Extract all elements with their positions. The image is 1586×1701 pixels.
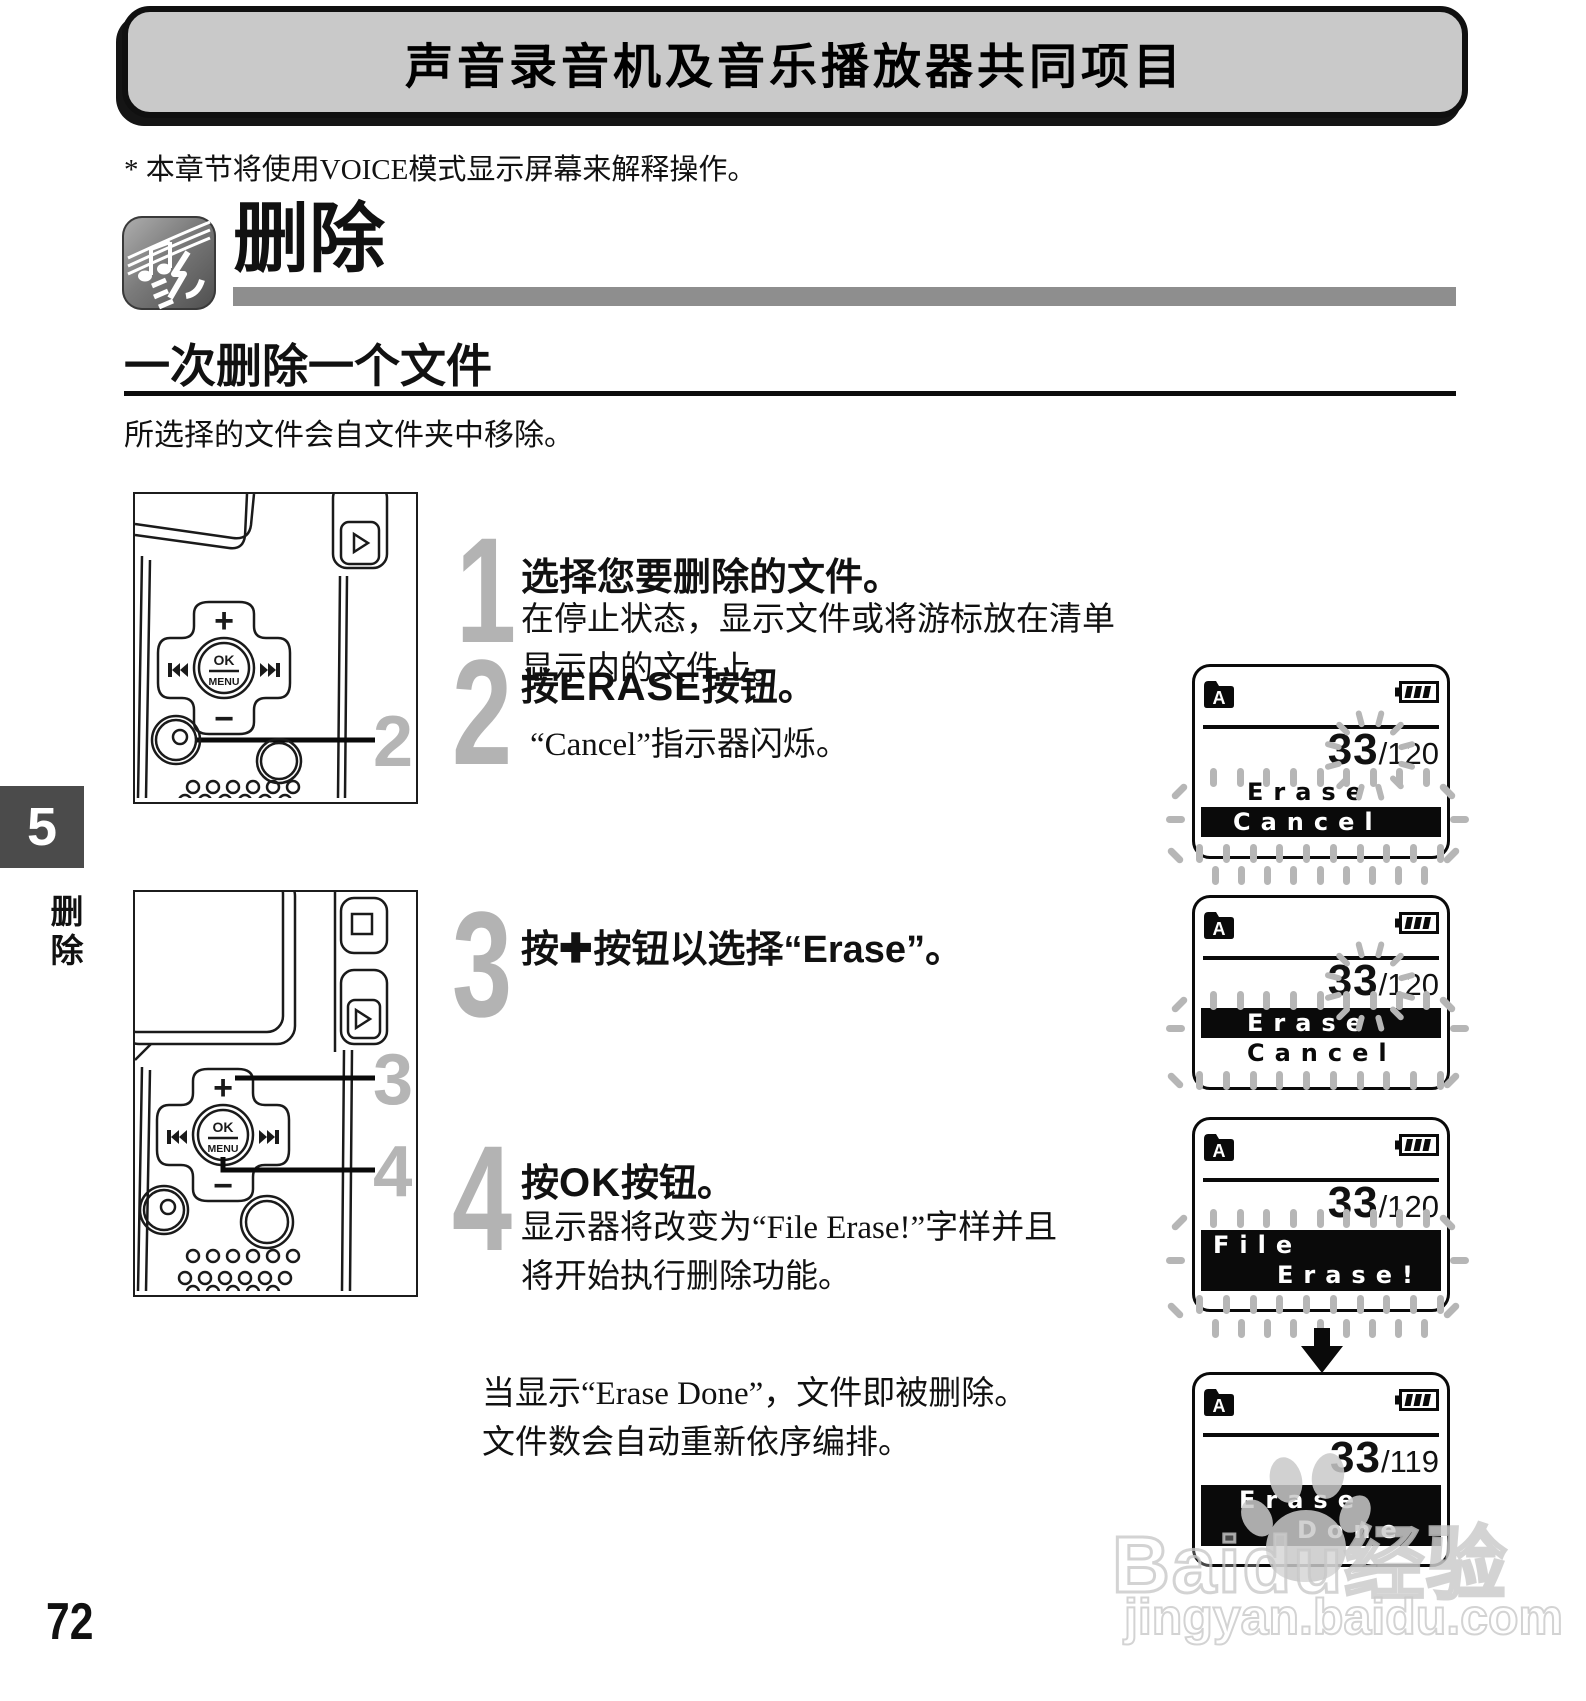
device-illustration-select: 3 4 bbox=[133, 890, 418, 1297]
menu-option-erase-selected: Erase bbox=[1201, 1008, 1441, 1038]
svg-text:A: A bbox=[1213, 1396, 1226, 1416]
svg-text:A: A bbox=[1213, 688, 1226, 708]
chapter-number: 5 bbox=[27, 796, 57, 858]
device-screen-outline bbox=[135, 494, 254, 538]
menu-option-cancel-selected: Cancel bbox=[1201, 807, 1441, 837]
svg-text:A: A bbox=[1213, 1141, 1226, 1161]
erase-menu: Erase Cancel bbox=[1201, 777, 1441, 837]
folder-button bbox=[241, 1196, 293, 1248]
step-3-title: 按✚按钮以选择“Erase”。 bbox=[521, 918, 963, 973]
folder-a-icon: A bbox=[1203, 910, 1235, 940]
file-counter: 33/120 bbox=[1328, 956, 1439, 1006]
device-body-edge bbox=[138, 556, 150, 798]
play-icon bbox=[356, 1010, 370, 1028]
blink-dashes bbox=[1196, 1295, 1444, 1314]
stop-icon bbox=[352, 914, 372, 934]
chapter-tab: 5 bbox=[0, 786, 84, 868]
erase-button bbox=[152, 716, 200, 764]
recorder-drawing-2: 3 4 bbox=[135, 892, 412, 1291]
callout-number-3: 3 bbox=[373, 1040, 412, 1120]
file-erase-message: File Erase! bbox=[1201, 1230, 1441, 1291]
watermark-url: jingyan.baidu.com bbox=[1124, 1588, 1563, 1646]
battery-icon bbox=[1395, 1134, 1439, 1156]
device-screen-outline bbox=[135, 892, 295, 1044]
step-4-title: 按OK按钮。 bbox=[521, 1152, 735, 1207]
recorder-drawing-1: 2 bbox=[135, 494, 412, 798]
menu-option-erase: Erase bbox=[1201, 777, 1441, 807]
callout-number-4: 4 bbox=[373, 1132, 412, 1212]
step-1-body-line: 在停止状态，显示文件或将游标放在清单 bbox=[521, 592, 1115, 640]
speaker-grille bbox=[179, 1250, 299, 1291]
erase-section-icon bbox=[122, 216, 216, 310]
menu-option-cancel: Cancel bbox=[1201, 1038, 1441, 1068]
battery-icon bbox=[1395, 681, 1439, 703]
step-3-number: 3 bbox=[452, 889, 512, 1039]
lcd-screen-erase: A 33/120 Erase Cancel bbox=[1192, 895, 1450, 1090]
blink-dashes bbox=[1212, 866, 1428, 885]
music-erase-icon bbox=[122, 216, 216, 310]
step-4-body-line: 将开始执行删除功能。 bbox=[521, 1249, 851, 1297]
blink-dashes bbox=[1196, 1071, 1444, 1090]
page-number: 72 bbox=[46, 1592, 93, 1652]
step-4-number: 4 bbox=[452, 1123, 512, 1273]
file-counter: 33/120 bbox=[1328, 725, 1439, 775]
subsection-title: 一次删除一个文件 bbox=[124, 330, 492, 396]
play-icon bbox=[354, 534, 368, 552]
subsection-rule bbox=[124, 391, 1456, 396]
device-body-edge bbox=[138, 1067, 150, 1291]
folder-button bbox=[257, 739, 301, 783]
chapter-banner: 声音录音机及音乐播放器共同项目 bbox=[122, 6, 1468, 118]
battery-icon bbox=[1395, 1389, 1439, 1411]
battery-icon bbox=[1395, 912, 1439, 934]
folder-a-icon: A bbox=[1203, 1132, 1235, 1162]
lcd-screen-file-erase: A 33/120 File Erase! bbox=[1192, 1117, 1450, 1312]
step-2-body-line: “Cancel”指示器闪烁。 bbox=[530, 717, 849, 765]
chapter-title: 声音录音机及音乐播放器共同项目 bbox=[405, 27, 1185, 97]
step-4-body-line: 显示器将改变为“File Erase!”字样并且 bbox=[521, 1200, 1057, 1248]
file-counter: 33/120 bbox=[1328, 1178, 1439, 1228]
erase-menu: Erase Cancel bbox=[1201, 1008, 1441, 1068]
strap bbox=[338, 576, 347, 798]
folder-a-icon: A bbox=[1203, 1387, 1235, 1417]
stop-button bbox=[341, 898, 387, 953]
step-2-number: 2 bbox=[452, 637, 512, 787]
device-illustration-erase: 2 bbox=[133, 492, 418, 804]
step-2-title: 按ERASE按钮。 bbox=[521, 656, 816, 711]
section-accent-bar bbox=[233, 287, 1456, 306]
section-title: 删除 bbox=[233, 202, 385, 278]
chapter-side-label: 删除 bbox=[40, 894, 88, 972]
arrow-down-icon bbox=[1301, 1328, 1343, 1374]
svg-text:A: A bbox=[1213, 919, 1226, 939]
lcd-screen-cancel: A 33/120 Erase Cancel bbox=[1192, 664, 1450, 859]
manual-page: 声音录音机及音乐播放器共同项目 * 本章节将使用VOICE模式显示屏幕来解释操作… bbox=[0, 0, 1586, 1701]
mode-note: * 本章节将使用VOICE模式显示屏幕来解释操作。 bbox=[124, 146, 756, 188]
subsection-intro: 所选择的文件会自文件夹中移除。 bbox=[124, 410, 574, 454]
callout-number-2: 2 bbox=[373, 702, 412, 782]
folder-a-icon: A bbox=[1203, 679, 1235, 709]
closing-paragraph: 当显示“Erase Done”，文件即被删除。 文件数会自动重新依序编排。 bbox=[482, 1370, 1027, 1468]
blink-dashes bbox=[1196, 844, 1444, 863]
